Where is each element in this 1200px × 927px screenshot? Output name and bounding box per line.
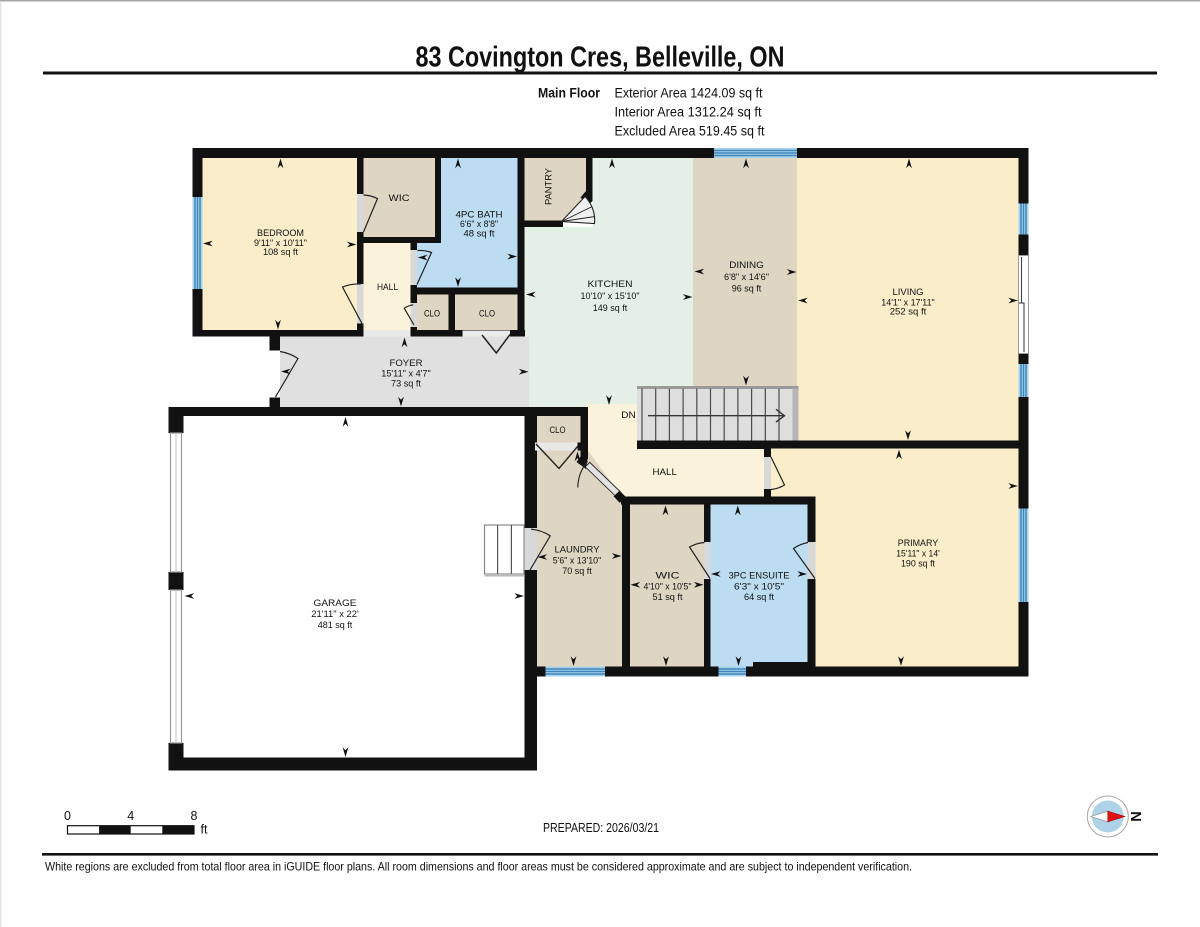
svg-text:DN: DN bbox=[621, 410, 636, 421]
svg-text:0: 0 bbox=[64, 809, 71, 823]
svg-text:21'11" x 22': 21'11" x 22' bbox=[311, 609, 359, 620]
svg-text:96 sq ft: 96 sq ft bbox=[732, 284, 762, 295]
svg-text:DINING: DINING bbox=[729, 260, 764, 271]
svg-text:PRIMARY: PRIMARY bbox=[898, 538, 939, 549]
svg-text:5'6" x 13'10": 5'6" x 13'10" bbox=[553, 556, 602, 567]
svg-text:64 sq ft: 64 sq ft bbox=[744, 592, 774, 603]
svg-text:51 sq ft: 51 sq ft bbox=[653, 592, 683, 603]
svg-text:252 sq ft: 252 sq ft bbox=[890, 307, 927, 318]
svg-text:4: 4 bbox=[127, 809, 134, 823]
svg-text:ft: ft bbox=[201, 823, 208, 837]
svg-text:6'3" x 10'5": 6'3" x 10'5" bbox=[734, 582, 784, 593]
svg-text:48 sq ft: 48 sq ft bbox=[464, 229, 495, 240]
svg-text:LAUNDRY: LAUNDRY bbox=[555, 545, 601, 556]
svg-text:Excluded Area 519.45 sq ft: Excluded Area 519.45 sq ft bbox=[615, 124, 765, 139]
svg-text:190 sq ft: 190 sq ft bbox=[901, 559, 935, 570]
svg-text:KITCHEN: KITCHEN bbox=[588, 279, 633, 290]
svg-text:73 sq ft: 73 sq ft bbox=[391, 379, 421, 390]
svg-text:LIVING: LIVING bbox=[893, 287, 924, 298]
svg-text:GARAGE: GARAGE bbox=[314, 598, 357, 609]
svg-text:CLO: CLO bbox=[479, 309, 495, 320]
svg-text:WIC: WIC bbox=[656, 571, 680, 582]
svg-text:PANTRY: PANTRY bbox=[544, 167, 555, 205]
svg-text:Main Floor: Main Floor bbox=[538, 86, 601, 101]
svg-text:Exterior Area 1424.09 sq ft: Exterior Area 1424.09 sq ft bbox=[615, 86, 763, 101]
svg-text:Interior Area 1312.24 sq ft: Interior Area 1312.24 sq ft bbox=[615, 105, 762, 120]
svg-text:FOYER: FOYER bbox=[390, 358, 423, 369]
svg-text:CLO: CLO bbox=[550, 425, 566, 436]
svg-text:149 sq ft: 149 sq ft bbox=[593, 303, 628, 314]
svg-text:8: 8 bbox=[191, 809, 198, 823]
svg-text:6'8" x 14'6": 6'8" x 14'6" bbox=[724, 272, 769, 283]
svg-text:PREPARED: 2026/03/21: PREPARED: 2026/03/21 bbox=[543, 820, 659, 835]
svg-text:WIC: WIC bbox=[389, 193, 410, 204]
svg-text:4'10" x 10'5": 4'10" x 10'5" bbox=[644, 582, 692, 593]
svg-text:70 sq ft: 70 sq ft bbox=[562, 566, 592, 577]
svg-text:HALL: HALL bbox=[377, 282, 398, 293]
svg-text:481 sq ft: 481 sq ft bbox=[318, 620, 353, 631]
svg-text:83 Covington Cres, Belleville,: 83 Covington Cres, Belleville, ON bbox=[416, 42, 785, 74]
svg-text:3PC ENSUITE: 3PC ENSUITE bbox=[729, 571, 790, 582]
svg-text:White regions are excluded fro: White regions are excluded from total fl… bbox=[45, 860, 912, 874]
svg-text:108 sq ft: 108 sq ft bbox=[263, 247, 298, 258]
svg-text:10'10" x 15'10": 10'10" x 15'10" bbox=[581, 291, 640, 302]
svg-text:N: N bbox=[1127, 811, 1143, 821]
svg-text:CLO: CLO bbox=[424, 309, 440, 320]
svg-text:HALL: HALL bbox=[653, 467, 677, 478]
